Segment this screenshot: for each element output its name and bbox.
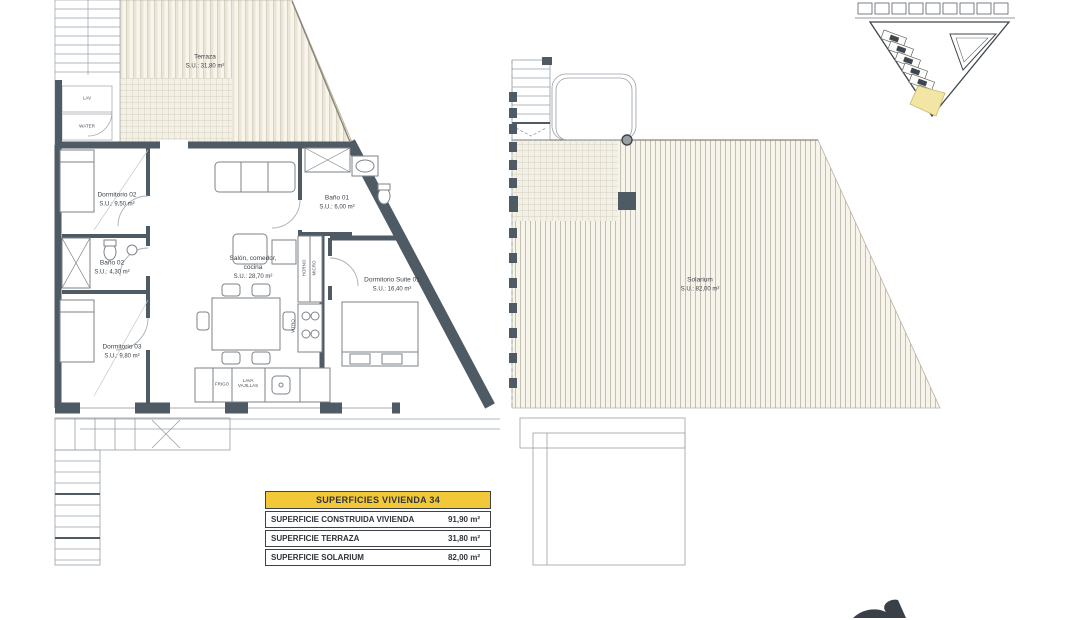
row-label: SUPERFICIE SOLARIUM (271, 553, 364, 562)
room-label-bano-01: Baño 01S.U.: 6,00 m² (319, 195, 354, 212)
hob-label: VITRO (292, 319, 297, 333)
room-label-salon: Salón, comedor, cocinaS.U.: 28,70 m² (221, 255, 285, 281)
dishwasher-label: LAVA VAJILLAS (236, 379, 260, 389)
row-label: SUPERFICIE TERRAZA (271, 534, 359, 543)
site-location-minimap (855, 3, 1015, 116)
row-value: 31,80 m² (448, 534, 480, 543)
area-summary-table: SUPERFICIES VIVIENDA 34 SUPERFICIE CONST… (265, 491, 491, 566)
room-label-terraza: TerrazaS.U.: 31,80 m² (186, 54, 225, 71)
dwelling-plan (55, 0, 500, 565)
table-row-terraza: SUPERFICIE TERRAZA 31,80 m² (265, 530, 491, 547)
room-label-bano-02: Baño 02S.U.: 4,30 m² (94, 260, 129, 277)
solarium-plan (509, 57, 940, 565)
row-label: SUPERFICIE CONSTRUIDA VIVIENDA (271, 515, 414, 524)
plan-linework (0, 0, 1070, 620)
logo-mark (853, 600, 906, 618)
room-label-dormitorio-03: Dormitorio 03S.U.: 9,80 m² (102, 344, 141, 361)
fridge-label: FRIGO (215, 383, 229, 388)
table-row-construida: SUPERFICIE CONSTRUIDA VIVIENDA 91,90 m² (265, 511, 491, 528)
floorplan-sheet: TerrazaS.U.: 31,80 m² Dormitorio 02S.U.:… (0, 0, 1070, 620)
solarium-stairs (512, 60, 636, 140)
room-label-dormitorio-02: Dormitorio 02S.U.: 9,50 m² (97, 192, 136, 209)
micro-label: MICRO (313, 261, 318, 276)
washer-label: LAV (83, 97, 91, 102)
table-row-solarium: SUPERFICIE SOLARIUM 82,00 m² (265, 549, 491, 566)
row-value: 91,90 m² (448, 515, 480, 524)
row-value: 82,00 m² (448, 553, 480, 562)
water-label: WATER (79, 125, 95, 130)
table-title: SUPERFICIES VIVIENDA 34 (265, 491, 491, 509)
room-label-solarium: SolariumS.U.: 82,00 m² (681, 277, 720, 294)
room-label-suite-01: Dormitorio Suite 01S.U.: 16,40 m² (364, 277, 420, 294)
oven-label: HORNO (303, 260, 308, 277)
